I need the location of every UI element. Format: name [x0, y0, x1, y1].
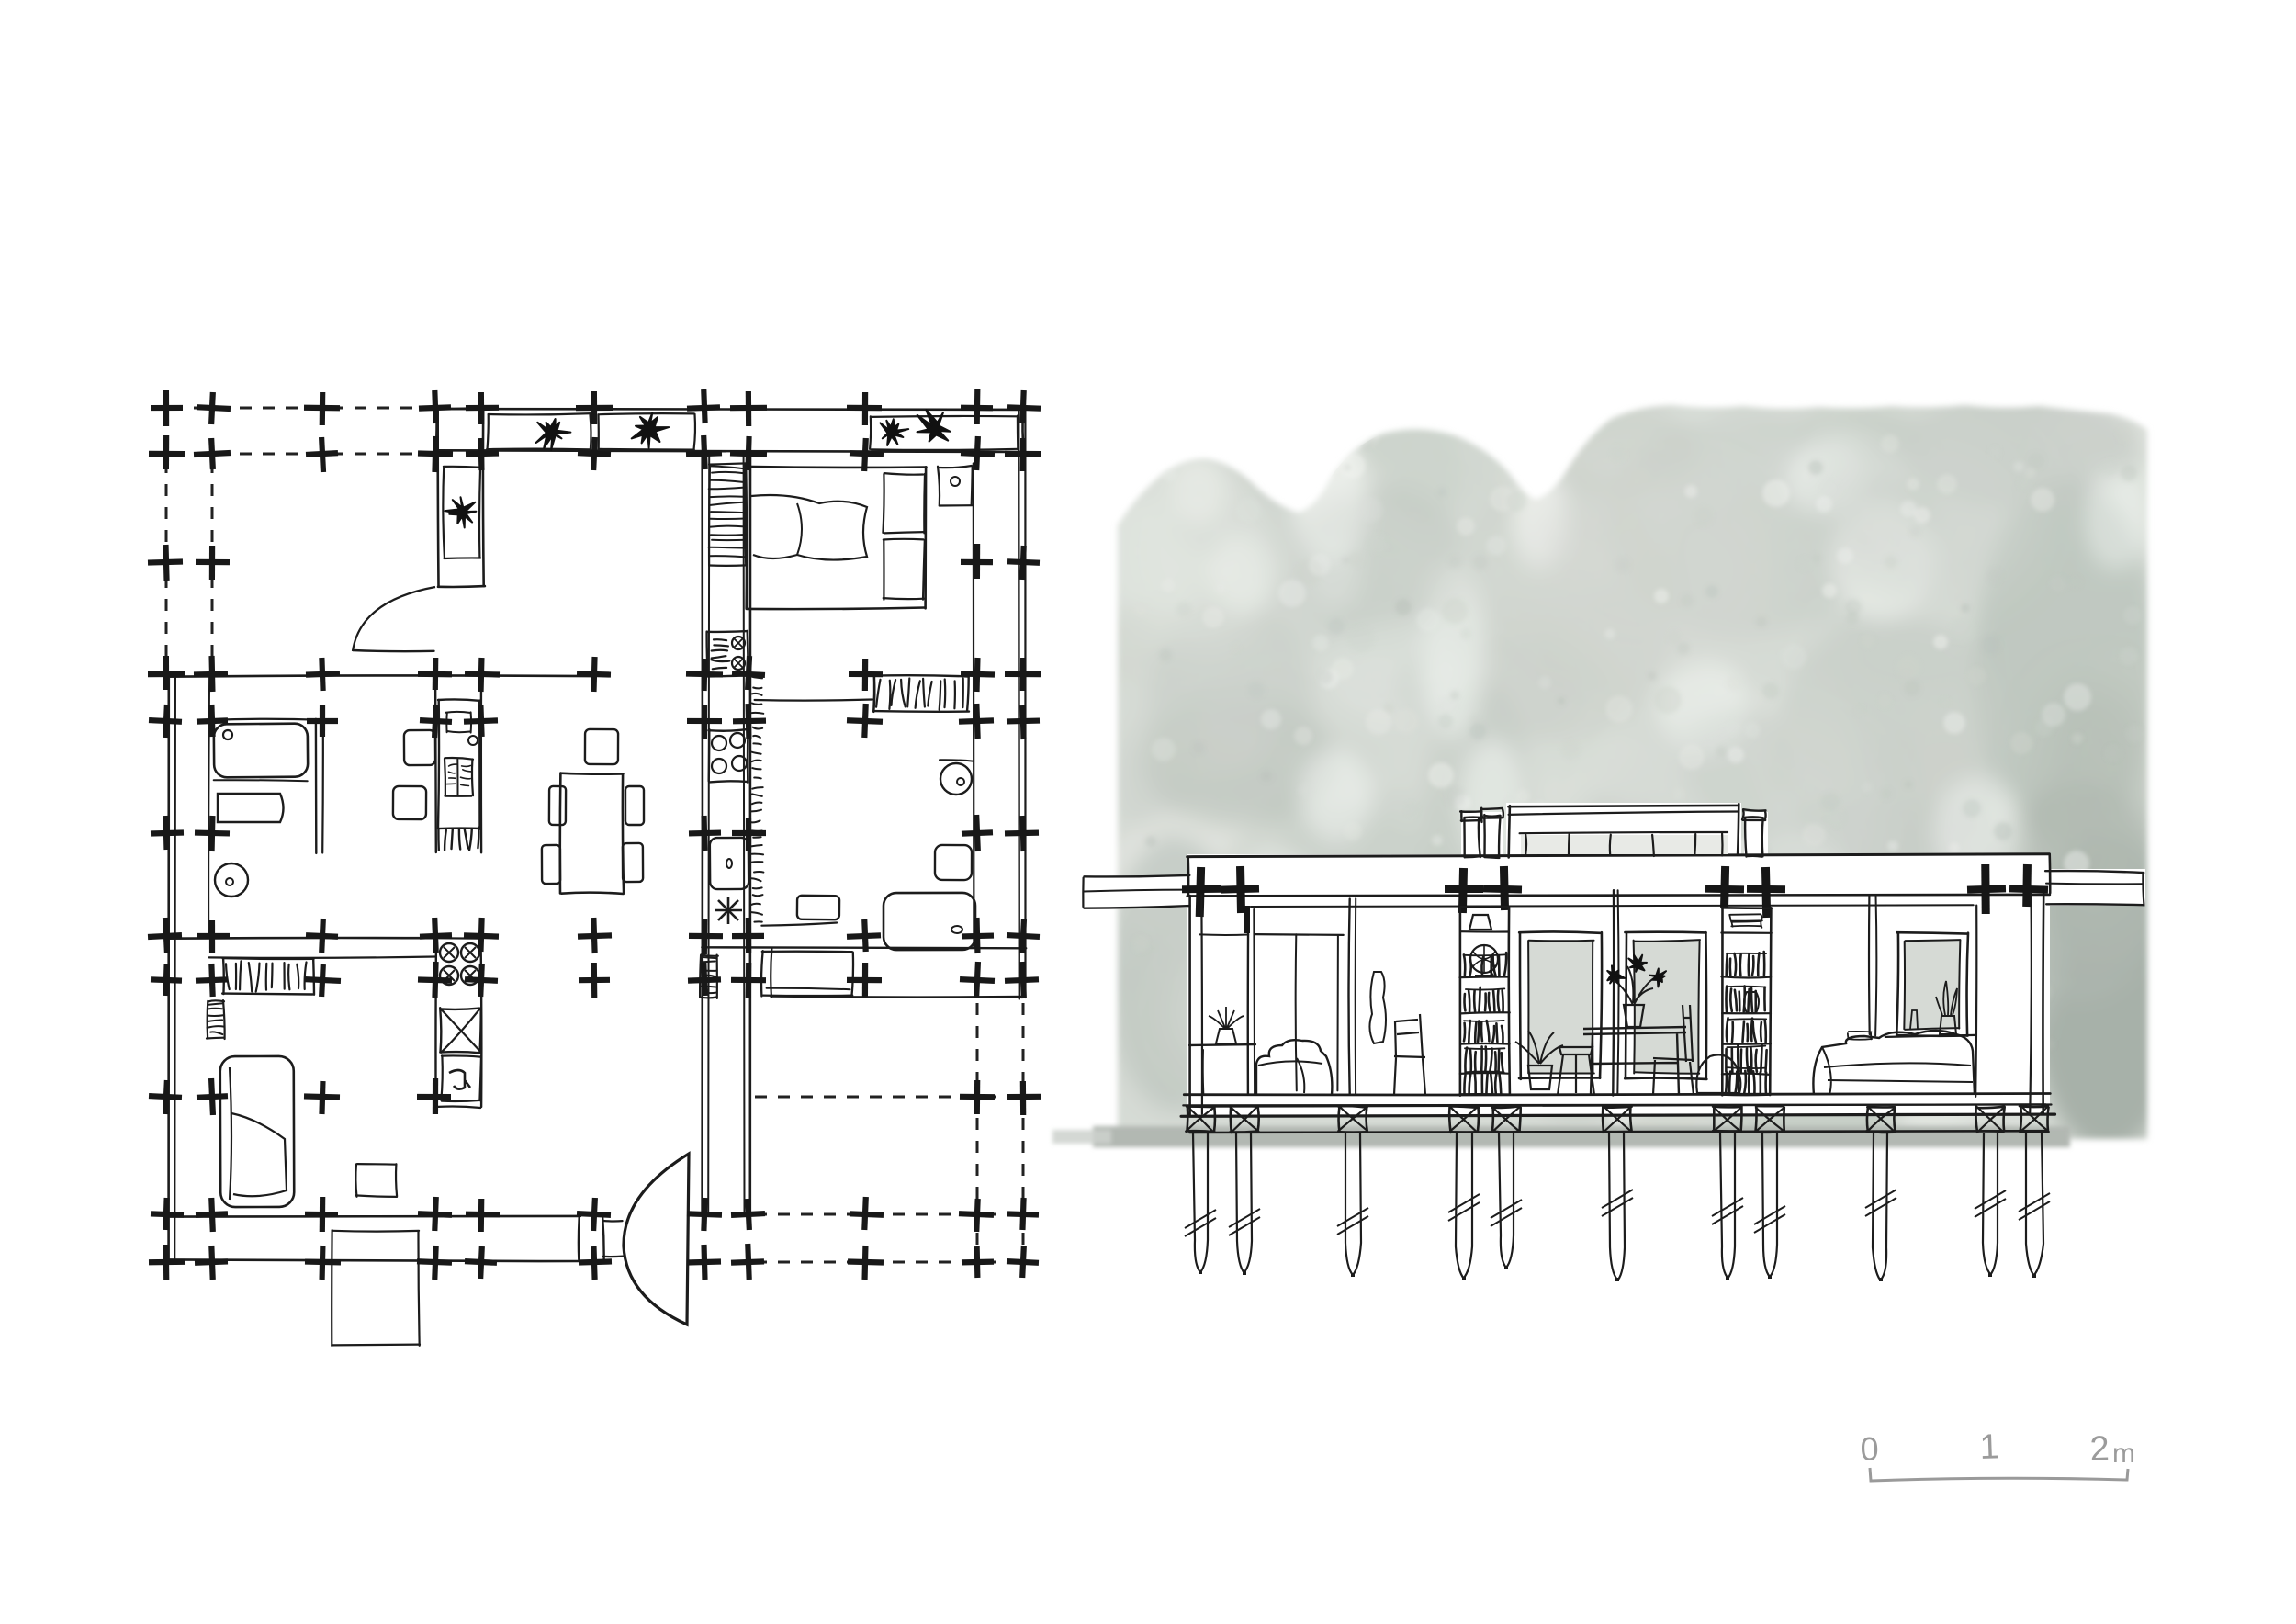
svg-text:0: 0: [1860, 1429, 1879, 1468]
svg-text:1: 1: [1979, 1427, 2000, 1467]
svg-text:m: m: [2112, 1438, 2135, 1469]
svg-text:2: 2: [2089, 1429, 2110, 1469]
